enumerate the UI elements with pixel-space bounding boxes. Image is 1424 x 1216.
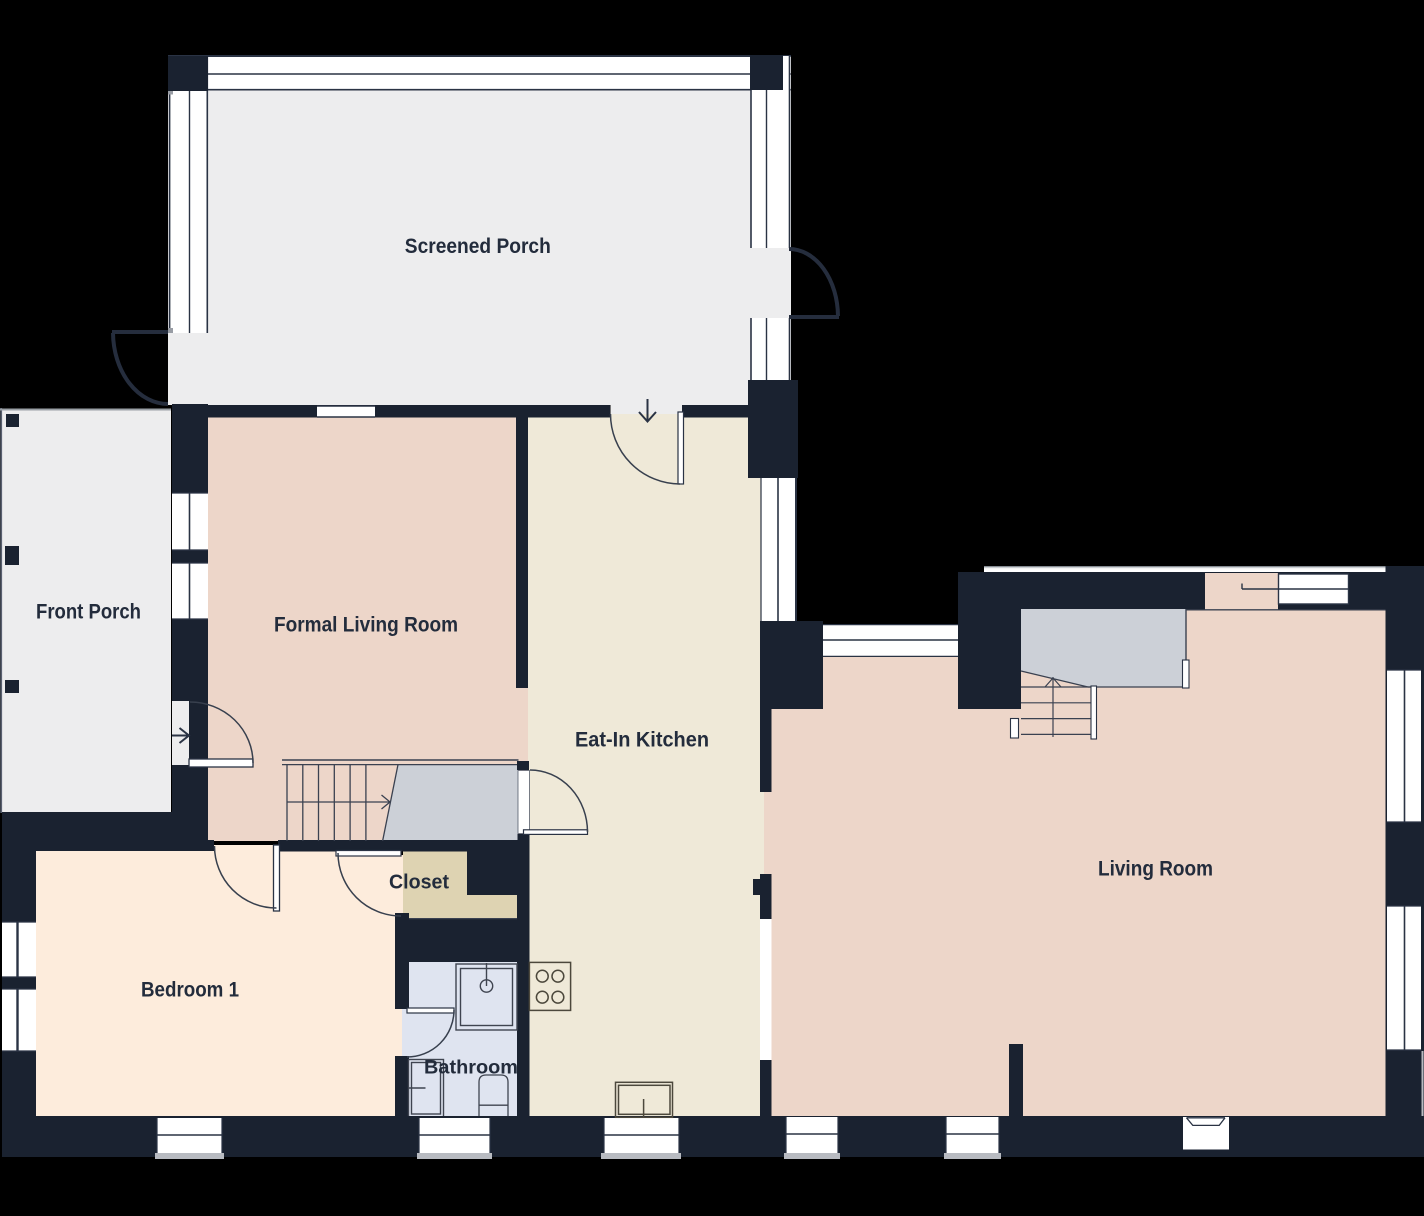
svg-text:Front Porch: Front Porch <box>36 601 141 624</box>
svg-text:Formal Living Room: Formal Living Room <box>274 614 458 637</box>
svg-text:Bedroom 1: Bedroom 1 <box>141 979 239 1002</box>
svg-text:Closet: Closet <box>389 871 449 894</box>
svg-text:Screened Porch: Screened Porch <box>405 235 551 258</box>
svg-text:Living Room: Living Room <box>1098 858 1213 881</box>
svg-text:Bathroom: Bathroom <box>424 1057 518 1079</box>
svg-text:Eat-In Kitchen: Eat-In Kitchen <box>575 729 709 752</box>
